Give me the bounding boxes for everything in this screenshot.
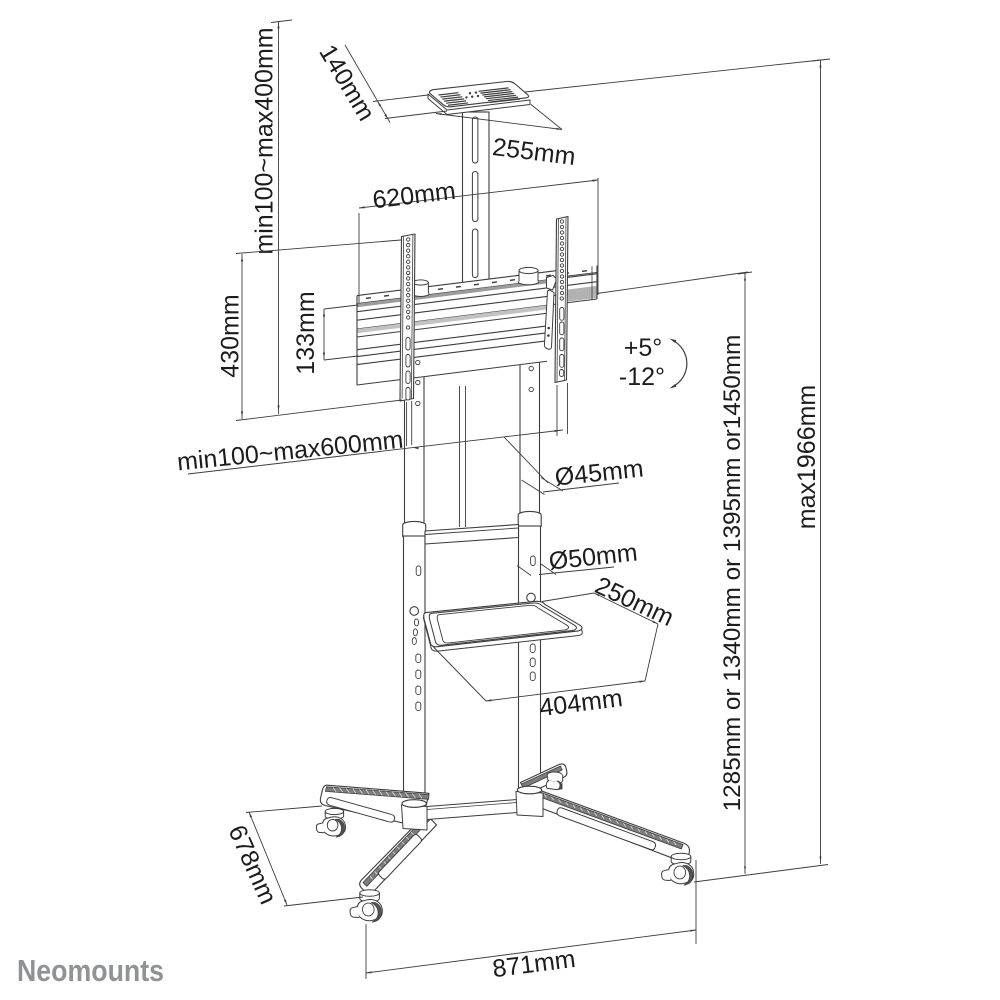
svg-text:+5°: +5° — [624, 334, 663, 362]
svg-text:133mm: 133mm — [292, 291, 320, 374]
svg-text:430mm: 430mm — [217, 294, 245, 377]
svg-text:-12°: -12° — [619, 363, 665, 391]
svg-text:1285mm or 1340mm or 1395mm or1: 1285mm or 1340mm or 1395mm or1450mm — [719, 335, 746, 812]
svg-text:max1966mm: max1966mm — [793, 385, 821, 530]
svg-text:min100~max400mm: min100~max400mm — [251, 27, 279, 254]
svg-text:Neomounts: Neomounts — [17, 954, 164, 988]
